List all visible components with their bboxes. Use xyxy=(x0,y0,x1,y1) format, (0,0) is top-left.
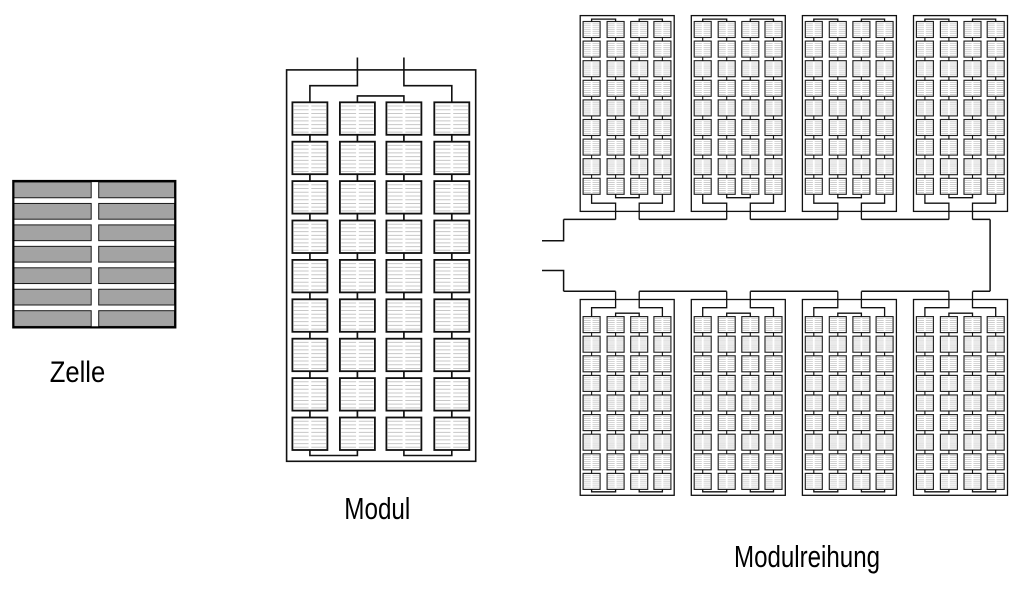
svg-text:Modul: Modul xyxy=(344,491,410,526)
svg-text:Modulreihung: Modulreihung xyxy=(734,539,880,574)
svg-text:Zelle: Zelle xyxy=(50,356,105,389)
